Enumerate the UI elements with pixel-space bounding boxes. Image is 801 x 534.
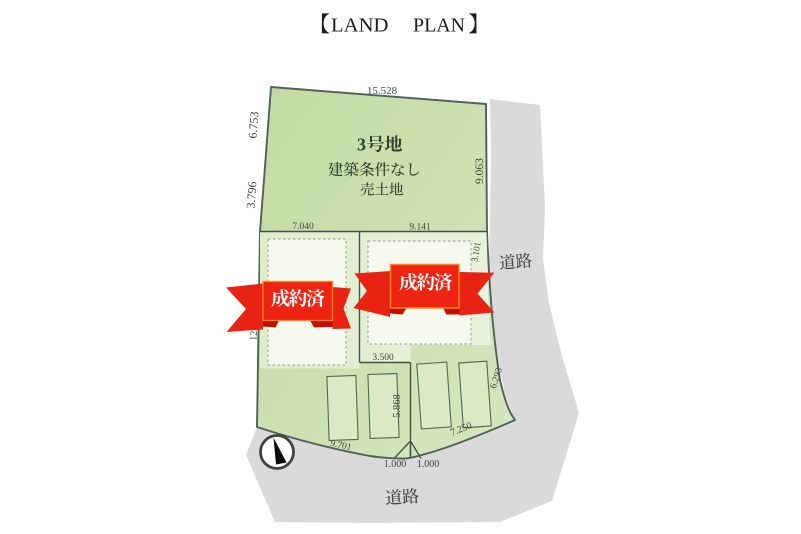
svg-text:15.528: 15.528: [367, 85, 398, 97]
svg-text:3.500: 3.500: [372, 353, 394, 363]
svg-text:6.753: 6.753: [246, 111, 262, 139]
svg-text:9.141: 9.141: [409, 223, 431, 233]
svg-text:LAND: LAND: [331, 15, 389, 37]
svg-text:7.040: 7.040: [292, 222, 314, 232]
svg-text:3.796: 3.796: [244, 181, 260, 209]
svg-text:5.868: 5.868: [392, 394, 403, 418]
svg-text:9.063: 9.063: [474, 158, 486, 184]
svg-text:PLAN: PLAN: [413, 15, 465, 37]
svg-text:1.000: 1.000: [417, 459, 440, 470]
svg-text:3: 3: [357, 135, 366, 155]
svg-text:1.000: 1.000: [384, 459, 407, 470]
